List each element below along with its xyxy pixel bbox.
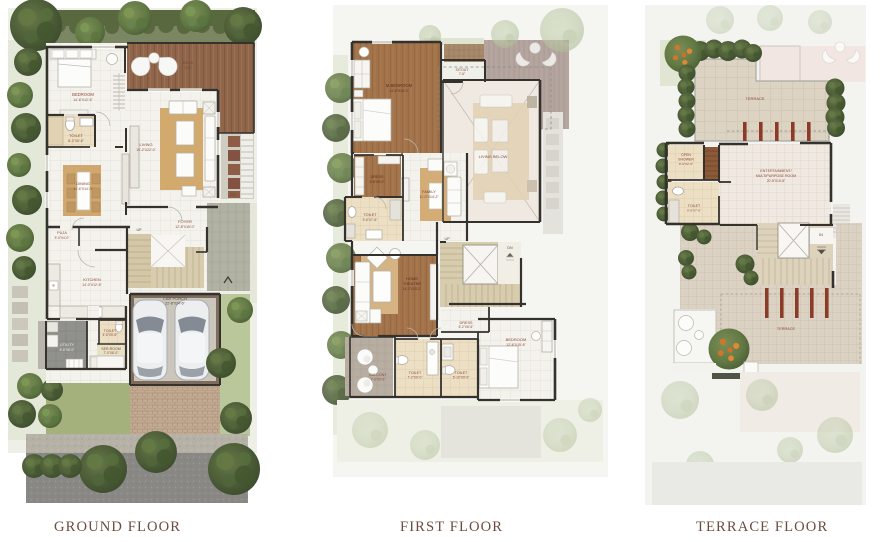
svg-text:FOYER: FOYER: [178, 219, 192, 224]
svg-text:4'-6"X5'-6": 4'-6"X5'-6": [103, 333, 118, 337]
svg-text:6'-6"X8'-0": 6'-6"X8'-0": [60, 348, 75, 352]
svg-text:19'-2"X22'-0": 19'-2"X22'-0": [136, 148, 156, 152]
svg-text:TOILET: TOILET: [69, 133, 83, 138]
svg-text:6'-2"X8'-6": 6'-2"X8'-6": [459, 325, 474, 329]
svg-text:8'-2"X5'-6": 8'-2"X5'-6": [68, 139, 85, 143]
svg-text:PUJA: PUJA: [57, 231, 67, 235]
svg-text:UP: UP: [137, 228, 143, 232]
svg-text:5'-0"X4'-0": 5'-0"X4'-0": [55, 236, 70, 240]
svg-text:UP: UP: [445, 237, 451, 241]
svg-text:14'-6"X14'-0": 14'-6"X14'-0": [73, 187, 93, 191]
svg-text:BALCONY: BALCONY: [369, 373, 387, 377]
svg-text:7'-6": 7'-6": [459, 72, 465, 76]
svg-text:DECK: DECK: [183, 61, 194, 65]
svg-text:DINING: DINING: [76, 181, 90, 186]
svg-text:20'-8"X15'-8": 20'-8"X15'-8": [767, 179, 785, 183]
svg-text:9'-6"X6'-0": 9'-6"X6'-0": [370, 180, 385, 184]
svg-text:TERRACE: TERRACE: [777, 327, 796, 331]
svg-text:11'-0"X14'-2": 11'-0"X14'-2": [419, 195, 439, 199]
svg-text:14'-6"X16'-0": 14'-6"X16'-0": [389, 89, 409, 93]
svg-text:9'-6"X7'-6": 9'-6"X7'-6": [687, 209, 701, 213]
svg-text:7'-2"X9'-0": 7'-2"X9'-0": [408, 376, 423, 380]
svg-text:7'-6"X9'-6": 7'-6"X9'-6": [371, 378, 386, 382]
svg-text:BEDROOM: BEDROOM: [72, 92, 94, 97]
svg-text:LIVING BELOW: LIVING BELOW: [479, 154, 508, 159]
svg-text:UTILITY: UTILITY: [60, 343, 75, 347]
svg-text:TOILET: TOILET: [409, 371, 422, 375]
svg-text:8'-6"X2'-6": 8'-6"X2'-6": [679, 162, 693, 166]
svg-text:14'-2"X15'-2": 14'-2"X15'-2": [403, 287, 421, 291]
svg-text:BEDROOM: BEDROOM: [506, 337, 527, 342]
svg-text:TERRACE: TERRACE: [745, 96, 764, 101]
svg-text:22'-8"X24'-6": 22'-8"X24'-6": [165, 302, 185, 306]
svg-text:SHOWER: SHOWER: [678, 158, 694, 162]
svg-text:IN: IN: [819, 233, 823, 237]
svg-text:12'-8"X15'-0": 12'-8"X15'-0": [175, 225, 195, 229]
svg-text:LIVING: LIVING: [139, 142, 152, 147]
svg-text:14'-0"X12'-6": 14'-0"X12'-6": [82, 283, 102, 287]
svg-text:OPEN: OPEN: [681, 153, 691, 157]
svg-text:DRESS: DRESS: [370, 175, 384, 179]
svg-text:ENTERTAINMENT/: ENTERTAINMENT/: [760, 169, 791, 173]
svg-text:TOILET: TOILET: [688, 204, 701, 208]
svg-text:KITCHEN: KITCHEN: [83, 277, 101, 282]
svg-text:DN: DN: [231, 193, 236, 197]
svg-text:TOILET: TOILET: [363, 213, 377, 217]
svg-text:7'-0"X8'-0": 7'-0"X8'-0": [104, 351, 119, 355]
svg-text:THEATRE: THEATRE: [403, 281, 422, 286]
svg-text:DN: DN: [507, 246, 513, 250]
svg-text:MULTIPURPOSE ROOM: MULTIPURPOSE ROOM: [756, 174, 796, 178]
svg-text:14'-6"X12'-6": 14'-6"X12'-6": [73, 98, 93, 102]
svg-text:FAMILY: FAMILY: [422, 189, 436, 194]
svg-text:M.BEDROOM: M.BEDROOM: [386, 83, 413, 88]
svg-text:9'-0": 9'-0": [185, 66, 193, 70]
svg-text:TOILET: TOILET: [455, 371, 468, 375]
svg-text:12'-6"X15'-6": 12'-6"X15'-6": [506, 343, 526, 347]
svg-text:9'-6"X7'-6": 9'-6"X7'-6": [363, 218, 378, 222]
svg-text:5'-10"X9'-0": 5'-10"X9'-0": [453, 376, 470, 380]
svg-text:CAR PORCH: CAR PORCH: [163, 296, 187, 301]
